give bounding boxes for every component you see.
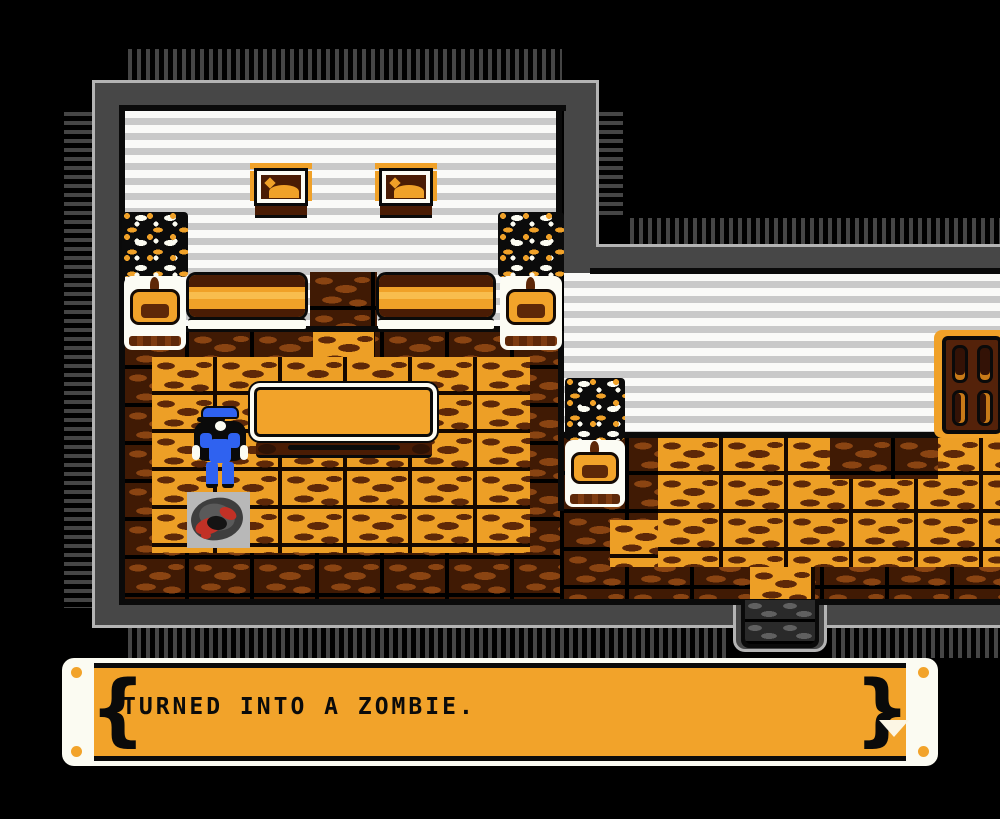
player-leg-right: [222, 462, 234, 488]
bed-pillow: [379, 292, 493, 299]
plant-pot-3: [565, 440, 625, 507]
mountain-icon: [269, 185, 299, 198]
player-hand-left: [192, 445, 200, 460]
dialog-ornament-right: }: [854, 666, 910, 754]
dialog-text: TURNED INTO A ZOMBIE.: [122, 694, 476, 720]
game-viewport[interactable]: { } TURNED INTO A ZOMBIE.: [0, 0, 1000, 819]
rivet-icon: [918, 746, 929, 757]
bed-mattress: [189, 299, 305, 310]
wall-highlight-bottom2: [827, 625, 1000, 628]
bed-mattress: [379, 299, 493, 310]
bed-2: [376, 272, 496, 320]
framed-picture-2: [375, 163, 437, 218]
door-panel: [952, 390, 968, 426]
wall-hatch-bottom-left: [128, 628, 728, 658]
table-shadow-slot: [288, 445, 401, 450]
bed-headboard: [379, 275, 493, 287]
mountain-icon: [394, 185, 424, 198]
floor-patch-top: [313, 331, 375, 357]
plant-pot-1: [124, 276, 186, 350]
table: [250, 383, 437, 441]
floor-bottom-line: [119, 599, 1000, 605]
framed-picture-1: [250, 163, 312, 218]
bed-footboard: [379, 309, 493, 317]
plant-pot-soil: [517, 304, 545, 319]
floor-right-shadow-patch: [830, 437, 938, 479]
table-foot-right: [412, 444, 430, 454]
bed-headboard: [189, 275, 305, 287]
player-leg-left: [206, 462, 218, 488]
wall-highlight-midright: [596, 80, 599, 247]
floor-exit-patch: [750, 567, 815, 602]
wall-inner-right-top: [590, 268, 1000, 274]
zombie-corpse: [187, 492, 250, 548]
exit-steps: [745, 600, 815, 644]
player-police-officer: [192, 406, 248, 492]
picture-base: [255, 206, 307, 218]
wall-highlight-bottom1: [92, 625, 733, 628]
wall-hatch-left: [64, 112, 95, 608]
dialog-advance-down-arrow-icon[interactable]: [879, 720, 909, 737]
plant-foliage-2: [498, 212, 564, 277]
rivet-icon: [71, 746, 82, 757]
wall-hatch-bottom-right: [832, 628, 1000, 658]
floor-right-orange: [658, 437, 1000, 567]
rivet-icon: [71, 667, 82, 678]
floor-wall-separator: [558, 331, 564, 511]
wall-hatch-mid-right: [597, 112, 623, 218]
table-base: [256, 441, 432, 458]
wall-inner-left: [119, 105, 125, 605]
picture-canvas: [379, 168, 433, 206]
picture-canvas: [254, 168, 308, 206]
plant-pot-soil: [141, 304, 169, 319]
picture-base: [380, 206, 432, 218]
table-foot-left: [258, 444, 276, 454]
door-panel: [952, 345, 968, 383]
plant-pot-2: [500, 276, 562, 350]
floor-column-between-beds: [310, 272, 377, 332]
plant-soil-strip: [505, 336, 557, 346]
player-hips: [209, 439, 231, 463]
door-frame: [934, 330, 1000, 438]
player-hand-right: [240, 445, 248, 460]
plant-pot-rim: [506, 289, 556, 325]
floor-right-orange2: [610, 520, 658, 567]
plant-pot-rim: [130, 289, 180, 325]
plant-pot-soil: [582, 465, 609, 478]
bed-1: [186, 272, 308, 320]
corpse-blood-3: [201, 532, 211, 539]
bed-pillow: [189, 292, 305, 299]
plant-soil-strip: [129, 336, 181, 346]
door-panel: [977, 345, 993, 383]
wall-band-mid-right: [564, 83, 596, 247]
wall-inner-top: [119, 105, 566, 111]
player-face: [215, 421, 226, 431]
bed-footboard: [189, 309, 305, 317]
rivet-icon: [918, 667, 929, 678]
plant-foliage-3: [565, 378, 625, 440]
door-panel: [977, 390, 993, 426]
plant-soil-strip: [570, 494, 620, 503]
dialog-box[interactable]: { } TURNED INTO A ZOMBIE.: [62, 658, 938, 766]
wall-band-bottom: [95, 605, 1000, 625]
door: [942, 336, 1000, 434]
plant-pot-rim: [571, 452, 619, 484]
plant-foliage-1: [122, 212, 188, 277]
